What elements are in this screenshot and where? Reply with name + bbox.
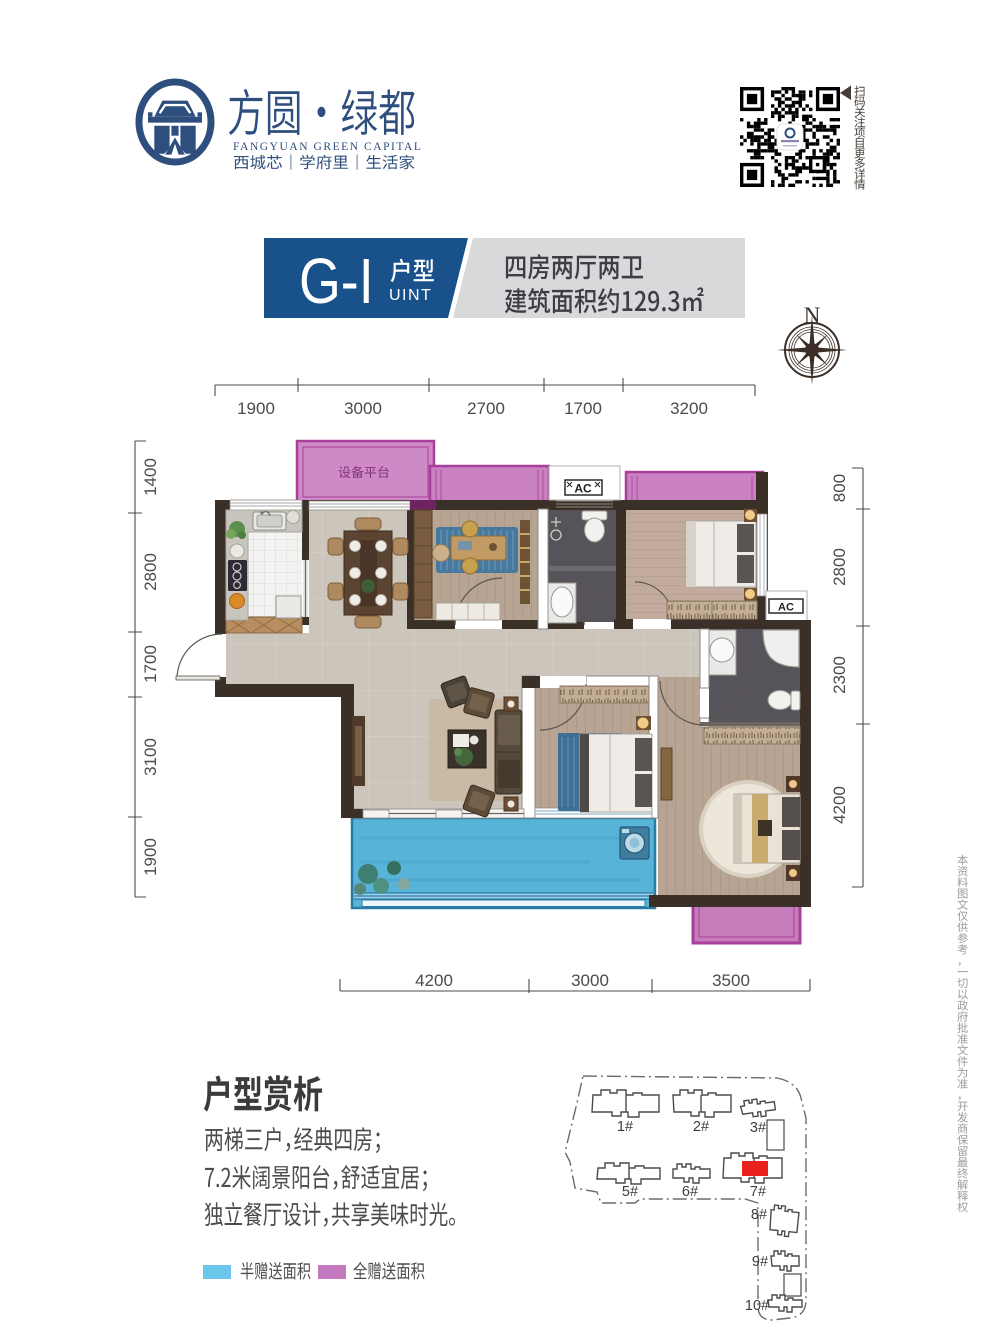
svg-text:8#: 8# <box>751 1207 767 1223</box>
svg-text:10#: 10# <box>745 1298 769 1314</box>
svg-text:3000: 3000 <box>344 399 382 418</box>
svg-text:1#: 1# <box>617 1119 633 1135</box>
svg-text:4200: 4200 <box>830 786 849 824</box>
svg-text:9#: 9# <box>752 1254 768 1270</box>
svg-text:2800: 2800 <box>141 553 160 591</box>
svg-text:FANGYUAN GREEN CAPITAL: FANGYUAN GREEN CAPITAL <box>233 141 423 153</box>
svg-text:UINT: UINT <box>389 287 432 304</box>
svg-text:G-I: G-I <box>299 245 374 318</box>
svg-text:3200: 3200 <box>670 399 708 418</box>
svg-text:3#: 3# <box>750 1120 766 1136</box>
svg-text:AC: AC <box>778 602 794 614</box>
svg-text:1400: 1400 <box>141 458 160 496</box>
svg-text:1900: 1900 <box>141 838 160 876</box>
svg-text:5#: 5# <box>622 1184 638 1200</box>
svg-text:2700: 2700 <box>467 399 505 418</box>
svg-text:3500: 3500 <box>712 971 750 990</box>
svg-text:3100: 3100 <box>141 738 160 776</box>
svg-text:800: 800 <box>830 474 849 502</box>
svg-text:1700: 1700 <box>564 399 602 418</box>
svg-text:4200: 4200 <box>415 971 453 990</box>
svg-text:2300: 2300 <box>830 656 849 694</box>
svg-text:6#: 6# <box>682 1184 698 1200</box>
svg-text:7#: 7# <box>750 1184 766 1200</box>
svg-text:2#: 2# <box>693 1119 709 1135</box>
svg-text:1700: 1700 <box>141 645 160 683</box>
svg-text:1900: 1900 <box>237 399 275 418</box>
svg-text:2800: 2800 <box>830 548 849 586</box>
svg-text:AC: AC <box>574 482 592 496</box>
svg-text:3000: 3000 <box>571 971 609 990</box>
